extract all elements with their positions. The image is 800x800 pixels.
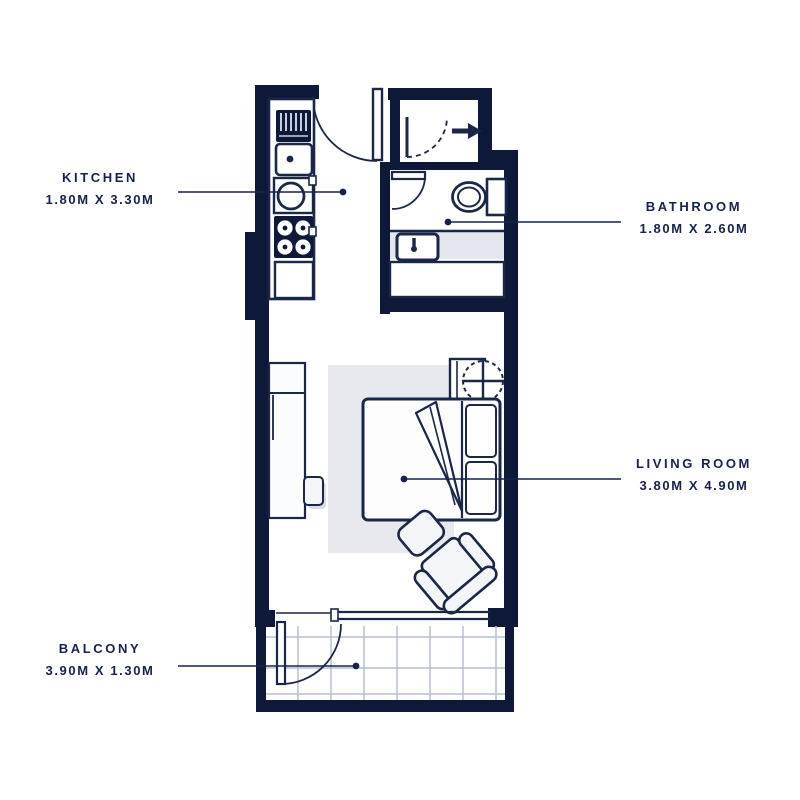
stool-symbol: [304, 477, 323, 505]
fridge-symbol: [276, 110, 311, 142]
living-room-size: 3.80M X 4.90M: [612, 479, 776, 493]
kitchen-size: 1.80M X 3.30M: [18, 193, 182, 207]
kitchen-unit: [269, 99, 316, 299]
kitchen-name: KITCHEN: [18, 171, 182, 185]
floor-tiles: [266, 626, 505, 700]
bathroom-leader: [445, 219, 621, 226]
double-bed-symbol: [363, 399, 500, 520]
bathroom-label: BATHROOM 1.80M X 2.60M: [612, 200, 776, 236]
kitchen-sink-basin: [276, 144, 312, 175]
floor-plan-page: KITCHEN 1.80M X 3.30M BATHROOM 1.80M X 2…: [0, 0, 800, 800]
toilet-symbol: [453, 179, 507, 215]
pillow: [466, 462, 496, 514]
living-room-name: LIVING ROOM: [612, 457, 776, 471]
bathroom-fixtures: [390, 172, 506, 297]
entrance-door: [313, 89, 382, 161]
bathtub-symbol: [390, 262, 504, 297]
bathroom-name: BATHROOM: [612, 200, 776, 214]
counter-jamb-tick: [309, 227, 316, 236]
living-furniture: [269, 359, 504, 619]
balcony-label: BALCONY 3.90M X 1.30M: [18, 642, 182, 678]
washbasin-symbol: [397, 234, 438, 260]
bathroom-door: [392, 172, 425, 209]
kitchen-lower-counter: [275, 262, 313, 298]
floor-plan-drawing: [0, 0, 800, 800]
balcony-name: BALCONY: [18, 642, 182, 656]
vestibule: [407, 117, 482, 157]
counter-jamb-tick: [309, 176, 316, 185]
entry-direction-arrow-icon: [452, 123, 482, 139]
balcony-size: 3.90M X 1.30M: [18, 664, 182, 678]
bathroom-size: 1.80M X 2.60M: [612, 222, 776, 236]
wardrobe-symbol: [269, 363, 326, 518]
balcony-area: [266, 609, 505, 700]
pillow: [466, 405, 496, 457]
kitchen-label: KITCHEN 1.80M X 3.30M: [18, 171, 182, 207]
living-room-label: LIVING ROOM 3.80M X 4.90M: [612, 457, 776, 493]
round-table-symbol: [450, 359, 504, 402]
stove-symbol: [274, 216, 313, 258]
kitchen-sink-round: [274, 178, 313, 213]
